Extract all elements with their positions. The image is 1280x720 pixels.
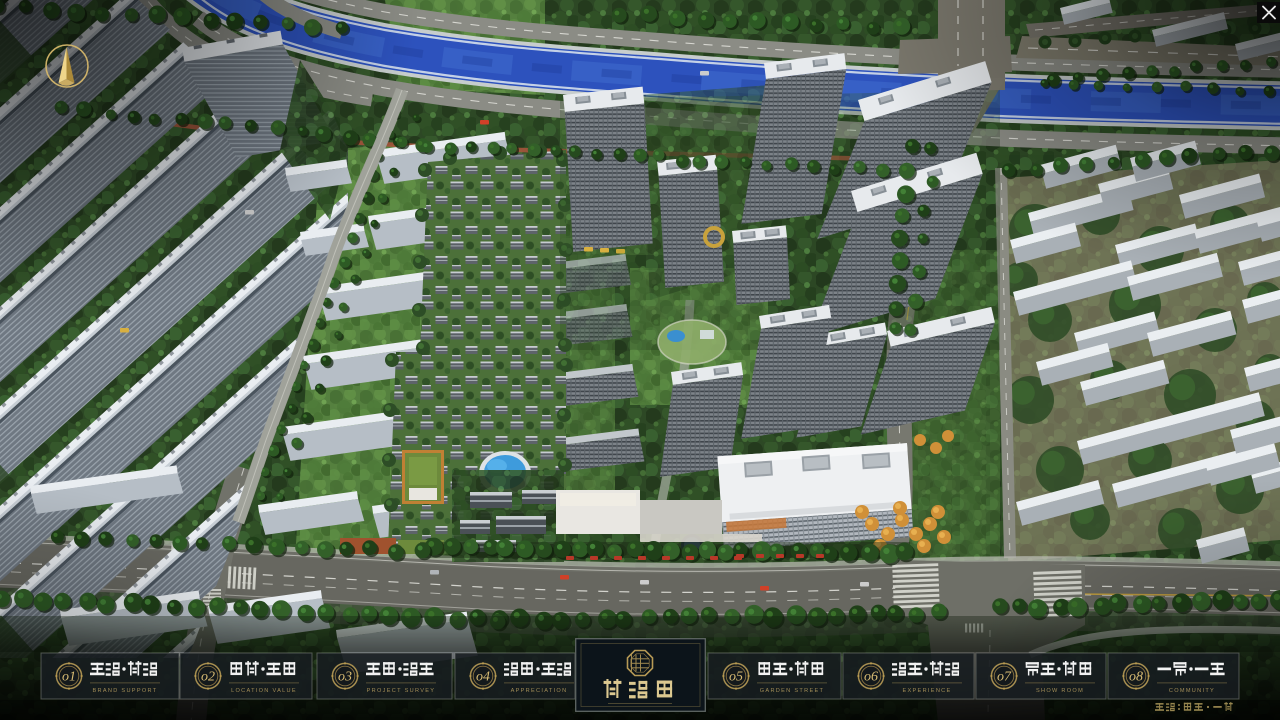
svg-text:o3: o3 — [338, 670, 352, 685]
svg-text:o1: o1 — [62, 670, 76, 685]
svg-text:EXPERIENCE: EXPERIENCE — [902, 688, 951, 694]
svg-text:o6: o6 — [864, 670, 878, 685]
svg-text:BRAND SUPPORT: BRAND SUPPORT — [93, 688, 158, 694]
svg-text:LOCATION VALUE: LOCATION VALUE — [231, 688, 297, 694]
svg-text:o2: o2 — [201, 670, 215, 685]
svg-text:COMMUNITY: COMMUNITY — [1169, 688, 1215, 694]
svg-text:o4: o4 — [476, 670, 490, 685]
svg-text:o7: o7 — [997, 670, 1012, 685]
svg-text:SHOW ROOM: SHOW ROOM — [1036, 688, 1084, 694]
svg-text:o5: o5 — [729, 670, 743, 685]
svg-text:APPRECIATION: APPRECIATION — [511, 688, 568, 694]
svg-text:GARDEN STREET: GARDEN STREET — [760, 688, 824, 694]
svg-text:PROJECT SURVEY: PROJECT SURVEY — [367, 688, 436, 694]
svg-text:o8: o8 — [1129, 670, 1143, 685]
